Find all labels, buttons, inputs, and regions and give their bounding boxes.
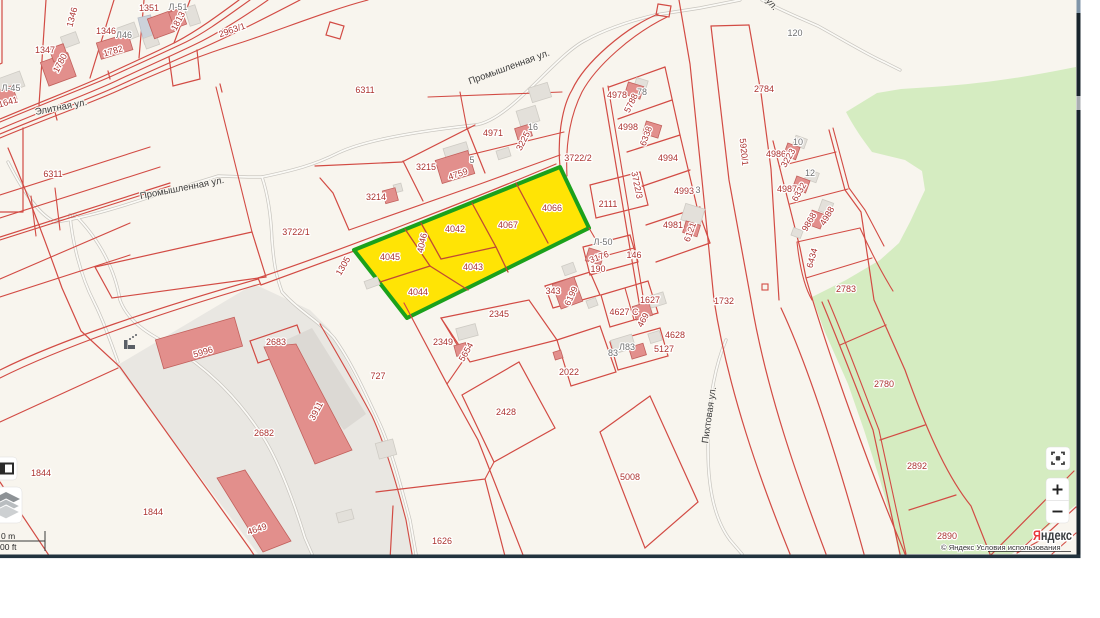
svg-text:2784: 2784 [754,84,774,94]
svg-text:3214: 3214 [366,192,386,202]
svg-text:78: 78 [637,87,647,97]
svg-text:190: 190 [590,264,605,274]
svg-text:1627: 1627 [640,295,660,305]
svg-text:146: 146 [626,250,641,260]
svg-text:Яндекс: Яндекс [1033,528,1072,543]
svg-text:3: 3 [695,185,700,195]
svg-text:2111: 2111 [599,199,618,209]
svg-text:2892: 2892 [907,461,927,471]
svg-text:4981: 4981 [663,220,683,230]
svg-text:120: 120 [787,28,802,38]
svg-text:2349: 2349 [433,337,453,347]
svg-text:2345: 2345 [489,309,509,319]
svg-text:4971: 4971 [483,128,503,138]
svg-text:Л83: Л83 [619,342,635,352]
svg-text:83: 83 [608,348,618,358]
svg-text:6311: 6311 [43,169,62,179]
svg-text:2683: 2683 [266,337,286,347]
svg-text:727: 727 [370,371,385,381]
svg-text:343: 343 [545,286,560,296]
svg-text:6311: 6311 [355,85,374,95]
svg-text:Л-50: Л-50 [594,237,613,247]
svg-text:4994: 4994 [658,153,678,163]
svg-text:3722/2: 3722/2 [564,153,592,163]
svg-text:4045: 4045 [380,252,400,262]
svg-text:4978: 4978 [607,90,627,100]
svg-text:1346: 1346 [96,26,116,36]
svg-text:2682: 2682 [254,428,274,438]
svg-text:5: 5 [469,155,474,165]
svg-text:1347: 1347 [35,45,55,55]
svg-text:4627 С: 4627 С [609,307,639,317]
svg-text:1351: 1351 [139,3,159,13]
svg-text:2022: 2022 [559,367,579,377]
svg-text:4044: 4044 [408,287,428,297]
svg-text:2890: 2890 [937,531,957,541]
svg-text:Л-45: Л-45 [2,83,21,93]
svg-text:0 m: 0 m [1,531,15,541]
svg-text:12: 12 [805,168,815,178]
svg-text:© Яндекс Условия использовани: © Яндекс Условия использования [941,543,1061,552]
svg-text:3215: 3215 [416,162,436,172]
svg-text:2428: 2428 [496,407,516,417]
svg-text:2783: 2783 [836,284,856,294]
svg-text:5008: 5008 [620,472,640,482]
svg-text:5127: 5127 [654,344,674,354]
svg-text:4998: 4998 [618,122,638,132]
svg-text:4067: 4067 [498,220,518,230]
svg-text:1844: 1844 [31,468,51,478]
svg-text:10: 10 [793,137,803,147]
svg-text:Л46: Л46 [116,30,132,40]
svg-text:1732: 1732 [714,296,734,306]
svg-text:16: 16 [528,122,538,132]
svg-text:3722/1: 3722/1 [282,227,310,237]
svg-text:4066: 4066 [542,203,562,213]
svg-text:1626: 1626 [432,536,452,546]
svg-text:4042: 4042 [445,224,465,234]
svg-text:2780: 2780 [874,379,894,389]
svg-text:00 ft: 00 ft [0,542,17,552]
svg-text:4628: 4628 [665,330,685,340]
svg-text:4993: 4993 [674,186,694,196]
svg-text:1844: 1844 [143,507,163,517]
svg-text:4043: 4043 [463,262,483,272]
